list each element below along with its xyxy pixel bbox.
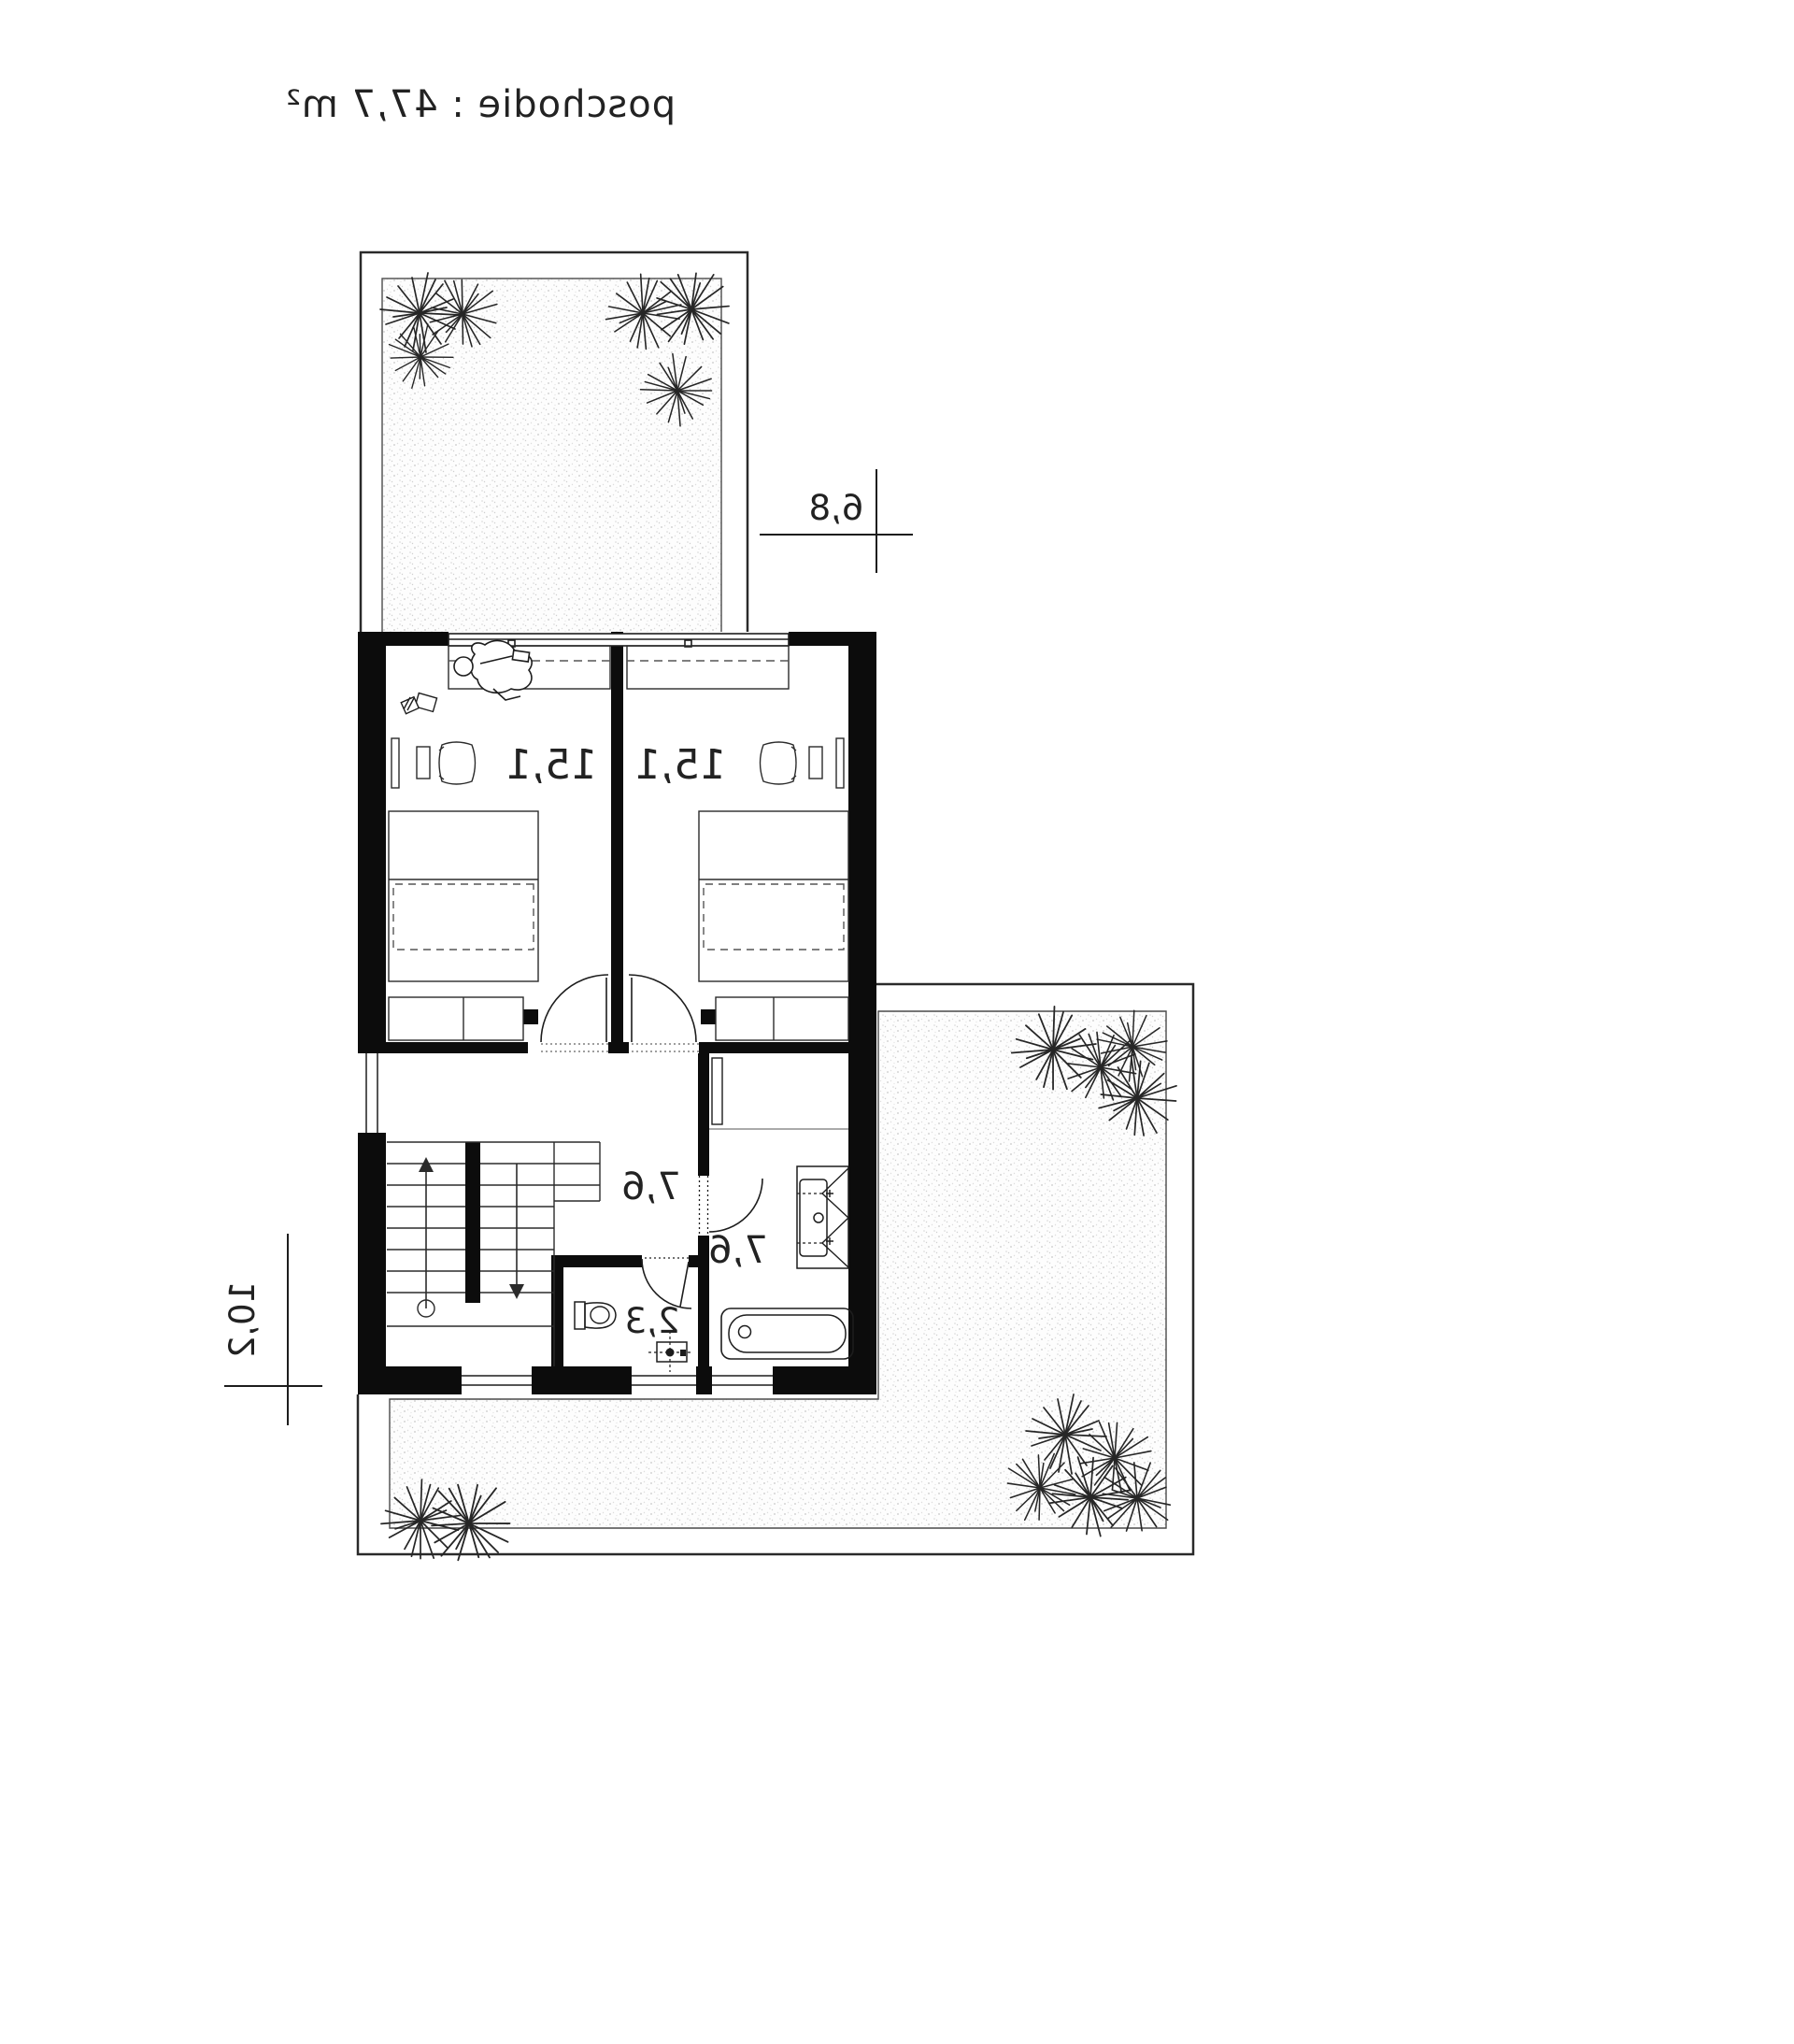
- wc-area-label: 2,3: [625, 1301, 680, 1341]
- floor-plan-drawing: poschodie : 47,7 m² 15,1 15,1 7,6 7,6 2,…: [0, 0, 1794, 2044]
- dimension-width-label: 6,8: [809, 488, 864, 528]
- side-window: [358, 1053, 386, 1133]
- plan-title: poschodie : 47,7 m²: [285, 83, 676, 126]
- floor-plan-page: poschodie : 47,7 m² 15,1 15,1 7,6 7,6 2,…: [0, 0, 1794, 2044]
- bedroom-left-area-label: 15,1: [505, 741, 597, 789]
- mirrored-plan-group: poschodie : 47,7 m² 15,1 15,1 7,6 7,6 2,…: [222, 83, 1193, 1582]
- bathroom-area-label: 7,6: [708, 1229, 768, 1272]
- hallway-area-label: 7,6: [621, 1165, 681, 1208]
- bedroom-right-area-label: 15,1: [634, 741, 726, 789]
- dimension-height-label: 10,2: [222, 1281, 263, 1358]
